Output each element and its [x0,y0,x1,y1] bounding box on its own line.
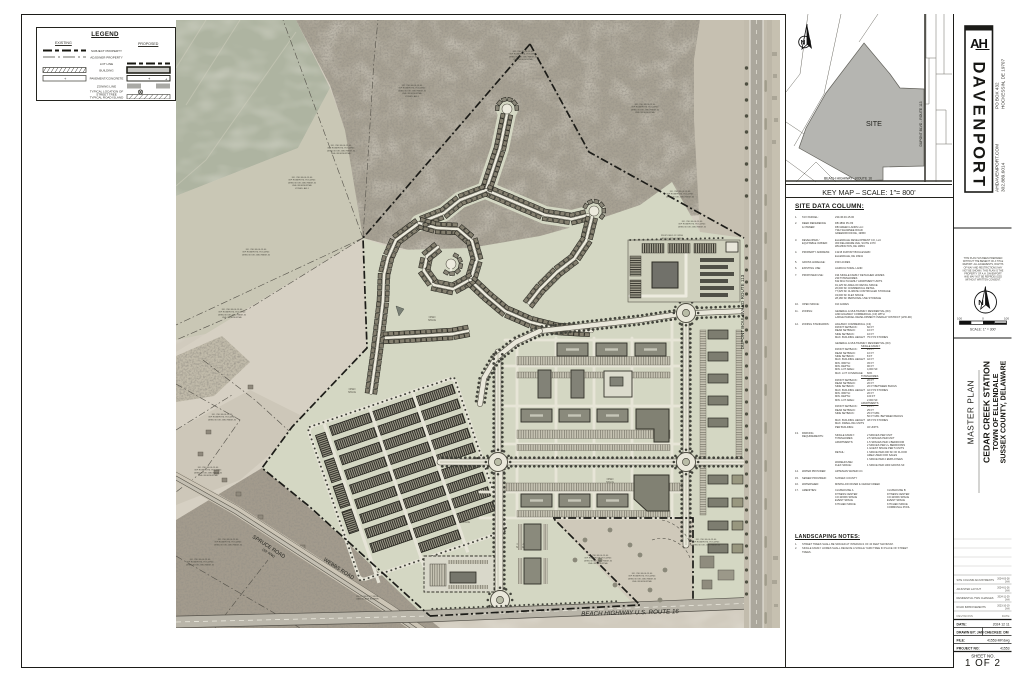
svg-text:DEED BOOK 2380 PAGE 45: DEED BOOK 2380 PAGE 45 [327,149,356,152]
svg-text:NO. 230-36.00-15.00: NO. 230-36.00-15.00 [222,309,243,311]
svg-text:NO. 230-36.00-15.00: NO. 230-36.00-15.00 [513,51,534,53]
svg-text:ROAD IMPROVEMENTS: ROAD IMPROVEMENTS [956,605,986,609]
svg-text:NO. 230-36.00-15.00: NO. 230-36.00-15.00 [670,191,691,193]
svg-text:DEED BOOK 2380 PAGE 45: DEED BOOK 2380 PAGE 45 [186,563,215,566]
svg-text:O: O [969,146,987,159]
svg-text:N/F ROBERT M. HOLDING: N/F ROBERT M. HOLDING [187,562,214,564]
svg-text:USE: RESIDENTIAL: USE: RESIDENTIAL [222,316,243,319]
svg-text:N/F ROBERT M. HOLDING: N/F ROBERT M. HOLDING [629,576,656,578]
svg-text:AHDAVENPORT.COM: AHDAVENPORT.COM [994,144,1000,192]
svg-text:DATE: DATE [1001,614,1009,618]
svg-text:R: R [969,161,987,173]
svg-text:ADJUSTED LAYOUT: ADJUSTED LAYOUT [956,587,981,591]
svg-text:NO. 230-36.00-15.00: NO. 230-36.00-15.00 [190,559,211,561]
svg-text:USE: RESIDENTIAL: USE: RESIDENTIAL [198,474,219,477]
svg-text:NO. 230-36.00-15.00: NO. 230-36.00-15.00 [218,539,239,541]
svg-text:PROJECT NO:: PROJECT NO: [956,647,979,651]
svg-text:41553-MP.dwg: 41553-MP.dwg [987,639,1009,643]
svg-text:DEED BOOK 2380 PAGE 45: DEED BOOK 2380 PAGE 45 [194,471,223,474]
svg-text:BEACH HIGHWAY - ROUTE 16: BEACH HIGHWAY - ROUTE 16 [824,177,872,181]
svg-text:ZONED: AR-1: ZONED: AR-1 [405,95,420,98]
svg-text:1 OF 2: 1 OF 2 [965,658,1001,668]
svg-text:NO. 230-36.00-15.00: NO. 230-36.00-15.00 [588,555,609,557]
svg-text:DEED BOOK 2380 PAGE 45: DEED BOOK 2380 PAGE 45 [678,225,707,228]
svg-text:RESIDENTIAL TWN CHANGES: RESIDENTIAL TWN CHANGES [956,596,993,600]
svg-text:MASTER PLAN: MASTER PLAN [966,380,975,444]
svg-text:DATE:: DATE: [956,623,966,627]
svg-text:N/F ROBERT M. HOLDING: N/F ROBERT M. HOLDING [632,107,659,109]
svg-text:WITHOUT WRITTEN CONSENT.: WITHOUT WRITTEN CONSENT. [965,279,1001,282]
svg-text:SUSSEX COUNTY, DELAWARE: SUSSEX COUNTY, DELAWARE [1000,360,1007,463]
svg-text:NO. 230-36.00-15.00: NO. 230-36.00-15.00 [696,539,717,541]
svg-text:ZONED: AR-1: ZONED: AR-1 [295,187,310,190]
svg-text:USE: RESIDENTIAL: USE: RESIDENTIAL [632,580,653,583]
svg-text:SCALE: 1″ = 300’: SCALE: 1″ = 300’ [969,328,996,332]
svg-text:USE: RESIDENTIAL: USE: RESIDENTIAL [588,562,609,565]
svg-text:SUBJECT PROPERTY: SUBJECT PROPERTY [91,49,122,53]
svg-text:DEED BOOK 2380 PAGE 45: DEED BOOK 2380 PAGE 45 [628,577,657,580]
svg-text:NO. 230-36.00-15.00: NO. 230-36.00-15.00 [632,573,653,575]
svg-text:NO. 230-36.00-15.00: NO. 230-36.00-15.00 [682,221,703,223]
svg-text:NO. 230-36.00-15.00: NO. 230-36.00-15.00 [292,177,313,179]
svg-text:DUPONT BLVD - ROUTE 113: DUPONT BLVD - ROUTE 113 [919,101,923,146]
svg-text:A: A [969,76,987,88]
svg-text:100: 100 [956,317,961,321]
svg-text:DEED BOOK 2380 PAGE 45: DEED BOOK 2380 PAGE 45 [218,313,247,316]
svg-text:CEDAR CREEK STATION: CEDAR CREEK STATION [981,361,991,463]
svg-text:DEED BOOK 2380 PAGE 45: DEED BOOK 2380 PAGE 45 [509,55,538,58]
svg-text:NO. 230-36.00-15.00: NO. 230-36.00-15.00 [402,85,423,87]
svg-text:N/F ROBERT M. HOLDING: N/F ROBERT M. HOLDING [195,470,222,472]
svg-text:DRAWN BY: JAN: DRAWN BY: JAN [956,631,984,635]
svg-text:BUILDING: BUILDING [99,68,114,72]
svg-text:SITE: SITE [866,119,882,128]
svg-text:DEED BOOK 2380 PAGE 45: DEED BOOK 2380 PAGE 45 [584,559,613,562]
svg-text:N: N [978,298,983,307]
svg-text:LOT LINE: LOT LINE [100,62,113,66]
svg-text:REVISIONS: REVISIONS [956,614,972,618]
svg-text:ADJOINER PROPERTY: ADJOINER PROPERTY [90,55,122,59]
svg-text:SPACE: SPACE [428,319,436,322]
svg-text:N/F ROBERT M. HOLDING: N/F ROBERT M. HOLDING [215,542,242,544]
svg-text:JAN: JAN [1004,599,1009,602]
svg-text:USE: RESIDENTIAL: USE: RESIDENTIAL [513,58,534,61]
svg-text:PROPOSED 15' WIDE: PROPOSED 15' WIDE [661,235,684,237]
svg-text:41553: 41553 [1000,647,1010,651]
svg-text:SPACE: SPACE [348,391,356,394]
svg-text:DEED BOOK 2380 PAGE 45: DEED BOOK 2380 PAGE 45 [666,195,695,198]
svg-text:302.889.6014: 302.889.6014 [1000,162,1006,192]
svg-text:N/F ROBERT M. HOLDING: N/F ROBERT M. HOLDING [399,88,426,90]
svg-text:USE: RESIDENTIAL: USE: RESIDENTIAL [292,184,313,187]
svg-text:N/F ROBERT M. HOLDING: N/F ROBERT M. HOLDING [219,312,246,314]
svg-text:N/F ROBERT M. HOLDING: N/F ROBERT M. HOLDING [289,180,316,182]
svg-text:NO. 230-36.00-15.00: NO. 230-36.00-15.00 [212,414,233,416]
svg-text:0: 0 [982,317,984,321]
svg-text:N/F ROBERT M. HOLDING: N/F ROBERT M. HOLDING [693,542,720,544]
svg-text:N/F ROBERT M. HOLDING: N/F ROBERT M. HOLDING [585,558,612,560]
svg-text:USE: RESIDENTIAL: USE: RESIDENTIAL [402,92,423,95]
svg-text:V: V [969,90,987,101]
svg-text:NO. 230-36.00-15.00: NO. 230-36.00-15.00 [198,467,219,469]
svg-text:2024 12 11: 2024 12 11 [992,623,1009,627]
svg-text:ZONING LINE: ZONING LINE [97,85,116,89]
svg-text:N/F ROBERT M. HOLDING: N/F ROBERT M. HOLDING [243,252,270,254]
svg-text:N/F ROBERT M. HOLDING: N/F ROBERT M. HOLDING [328,148,355,150]
svg-text:LANDSCAPE BUFFER: LANDSCAPE BUFFER [661,237,684,240]
svg-text:SITE COLUMN ADJUSTMENTS: SITE COLUMN ADJUSTMENTS [956,578,994,582]
svg-text:USE: RESIDENTIAL: USE: RESIDENTIAL [331,152,352,155]
svg-text:100: 100 [1003,317,1008,321]
svg-text:N: N [969,118,987,130]
svg-text:DUPONT BOULEVARD ROUTE 113: DUPONT BOULEVARD ROUTE 113 [740,274,745,349]
svg-text:T: T [969,176,987,186]
svg-text:N/F ROBERT M. HOLDING: N/F ROBERT M. HOLDING [209,417,236,419]
svg-text:PO BOX 432: PO BOX 432 [994,82,999,109]
svg-text:JAN: JAN [1004,590,1009,593]
svg-text:TOWN OF ELLENDALE: TOWN OF ELLENDALE [993,373,1000,450]
svg-text:D: D [969,62,987,74]
svg-text:HOCKESSIN, DE 19707: HOCKESSIN, DE 19707 [1000,59,1005,109]
svg-text:DEED BOOK 2380 PAGE 45: DEED BOOK 2380 PAGE 45 [208,418,237,421]
svg-text:FILE:: FILE: [956,639,964,643]
svg-text:JAN: JAN [1004,608,1009,611]
svg-text:DEED BOOK 2380 PAGE 45: DEED BOOK 2380 PAGE 45 [214,543,243,546]
svg-text:N/F ROBERT M. HOLDING: N/F ROBERT M. HOLDING [667,194,694,196]
svg-text:DEED BOOK 2380 PAGE 45: DEED BOOK 2380 PAGE 45 [242,253,271,256]
svg-text:AH: AH [970,36,987,51]
svg-text:NO. 230-36.00-15.00: NO. 230-36.00-15.00 [246,249,267,251]
svg-text:CHECKED: DM: CHECKED: DM [984,631,1008,635]
svg-text:DEED BOOK 2380 PAGE 45: DEED BOOK 2380 PAGE 45 [631,108,660,111]
svg-text:JAN: JAN [1004,581,1009,584]
svg-text:E: E [969,105,987,116]
svg-text:TYPICAL ROAD ISLAND: TYPICAL ROAD ISLAND [90,96,124,100]
svg-text:USE: RESIDENTIAL: USE: RESIDENTIAL [635,111,656,114]
svg-text:N/F ROBERT M. HOLDING: N/F ROBERT M. HOLDING [679,224,706,226]
svg-text:PAVEMENT/CONCRETE: PAVEMENT/CONCRETE [90,77,124,81]
svg-text:DEED BOOK 2380 PAGE 45: DEED BOOK 2380 PAGE 45 [288,181,317,184]
svg-text:PROPOSED 12' WIDELANDSCAPE BUF: PROPOSED 12' WIDELANDSCAPE BUFFER [356,596,379,601]
svg-text:NO. 230-36.00-15.00: NO. 230-36.00-15.00 [331,145,352,147]
svg-text:N/F ROBERT M. HOLDING: N/F ROBERT M. HOLDING [510,54,537,56]
svg-text:NO. 230-36.00-15.00: NO. 230-36.00-15.00 [635,104,656,106]
svg-text:DEED BOOK 2380 PAGE 45: DEED BOOK 2380 PAGE 45 [398,89,427,92]
svg-text:N: N [801,39,806,46]
svg-text:DEED BOOK 2380 PAGE 45: DEED BOOK 2380 PAGE 45 [692,543,721,546]
svg-text:P: P [969,133,987,144]
